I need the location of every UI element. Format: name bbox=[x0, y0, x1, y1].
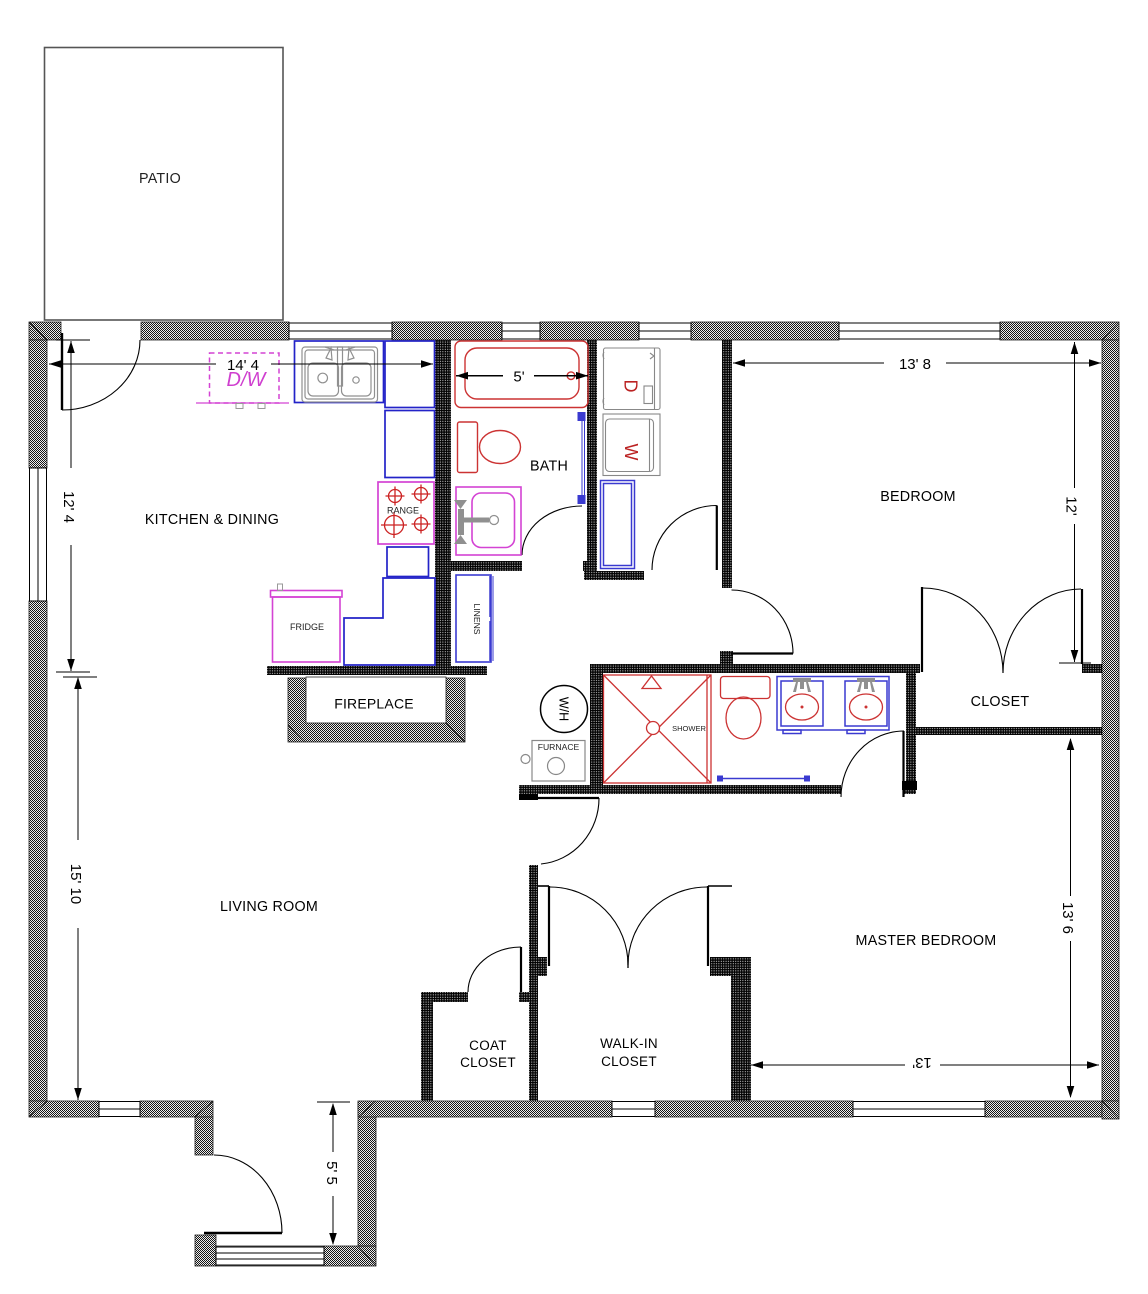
svg-text:LIVING ROOM: LIVING ROOM bbox=[220, 899, 318, 915]
svg-text:D: D bbox=[621, 380, 641, 393]
svg-text:5' 5: 5' 5 bbox=[323, 1161, 340, 1185]
svg-text:13' 8: 13' 8 bbox=[899, 356, 931, 373]
svg-text:W: W bbox=[621, 444, 641, 461]
svg-text:MASTER BEDROOM: MASTER BEDROOM bbox=[856, 933, 997, 949]
svg-text:LINENS: LINENS bbox=[472, 603, 482, 634]
svg-text:RANGE: RANGE bbox=[387, 506, 419, 516]
svg-text:PATIO: PATIO bbox=[139, 171, 181, 187]
svg-text:15' 10: 15' 10 bbox=[67, 864, 84, 904]
svg-text:W/H: W/H bbox=[557, 697, 571, 721]
svg-text:WALK-IN: WALK-IN bbox=[600, 1036, 658, 1051]
svg-text:13': 13' bbox=[912, 1054, 932, 1071]
svg-text:KITCHEN & DINING: KITCHEN & DINING bbox=[145, 512, 279, 528]
svg-text:CLOSET: CLOSET bbox=[971, 694, 1030, 710]
svg-text:FRIDGE: FRIDGE bbox=[290, 622, 324, 632]
svg-text:BATH: BATH bbox=[530, 459, 568, 475]
svg-text:SHOWER: SHOWER bbox=[672, 724, 706, 733]
svg-text:COAT: COAT bbox=[469, 1038, 507, 1053]
svg-text:CLOSET: CLOSET bbox=[601, 1054, 657, 1069]
svg-text:12': 12' bbox=[1063, 496, 1080, 516]
svg-text:13' 6: 13' 6 bbox=[1059, 902, 1076, 934]
svg-text:FIREPLACE: FIREPLACE bbox=[334, 696, 414, 712]
svg-text:CLOSET: CLOSET bbox=[460, 1055, 516, 1070]
svg-text:FURNACE: FURNACE bbox=[538, 742, 580, 752]
svg-text:5': 5' bbox=[513, 369, 524, 386]
svg-text:BEDROOM: BEDROOM bbox=[880, 489, 956, 505]
svg-text:14' 4: 14' 4 bbox=[227, 357, 259, 374]
svg-text:12' 4: 12' 4 bbox=[60, 491, 77, 523]
